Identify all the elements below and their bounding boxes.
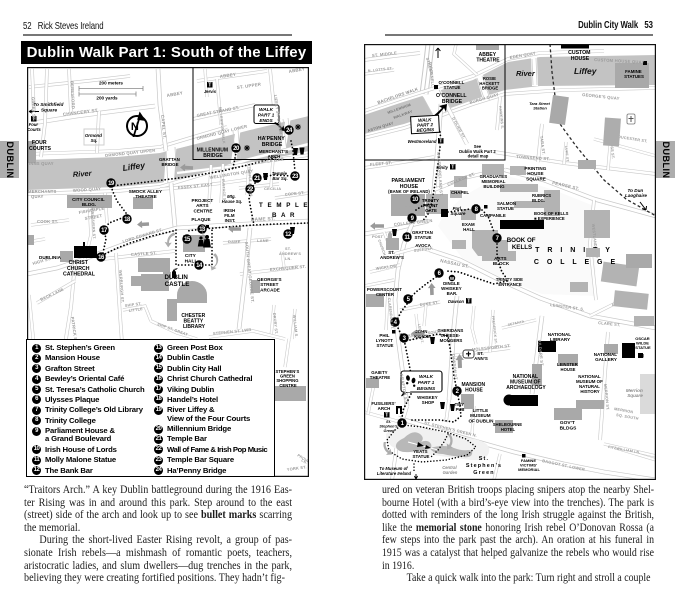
svg-text:CHAPEL: CHAPEL bbox=[451, 190, 469, 195]
svg-text:WALK: WALK bbox=[419, 374, 434, 380]
svg-text:EXAM HALL: EXAM HALL bbox=[462, 222, 476, 232]
svg-text:QUAY: QUAY bbox=[31, 194, 44, 199]
svg-text:LN.: LN. bbox=[285, 257, 292, 261]
svg-text:LANE: LANE bbox=[257, 238, 269, 243]
svg-text:PRINTING HOUSE SQUARE: PRINTING HOUSE SQUARE bbox=[524, 166, 547, 181]
svg-text:ENDS: ENDS bbox=[259, 118, 273, 124]
svg-text:MANSION HOUSE: MANSION HOUSE bbox=[461, 382, 486, 394]
svg-text:CHESTER BEATTY LIBRARY: CHESTER BEATTY LIBRARY bbox=[181, 313, 206, 330]
svg-text:DUBLIN CASTLE: DUBLIN CASTLE bbox=[164, 274, 189, 288]
svg-text:ARTS BLOCK: ARTS BLOCK bbox=[493, 256, 510, 266]
svg-text:FAMINE STATUES: FAMINE STATUES bbox=[624, 69, 644, 79]
svg-text:GAIETY THEATRE: GAIETY THEATRE bbox=[370, 370, 390, 380]
svg-text:WALK: WALK bbox=[259, 107, 274, 113]
svg-text:Green: Green bbox=[473, 470, 495, 476]
svg-text:Liffey: Liffey bbox=[574, 66, 598, 76]
svg-text:Westmoreland: Westmoreland bbox=[408, 139, 437, 144]
svg-text:GOV’T BLDGS: GOV’T BLDGS bbox=[560, 420, 578, 431]
svg-text:BOOK OF KELLS ■ EXPERIENCE: BOOK OF KELLS ■ EXPERIENCE bbox=[534, 211, 570, 221]
svg-text:PART 1: PART 1 bbox=[258, 112, 275, 118]
svg-text:NATIONAL GALLERY: NATIONAL GALLERY bbox=[594, 352, 619, 362]
svg-text:CECILIA: CECILIA bbox=[264, 186, 281, 191]
svg-text:BEGINS: BEGINS bbox=[416, 127, 435, 133]
svg-text:NATIONAL LIBRARY: NATIONAL LIBRARY bbox=[548, 332, 573, 342]
svg-text:TINY PUB: TINY PUB bbox=[455, 402, 466, 412]
svg-text:COOK ST.: COOK ST. bbox=[37, 219, 58, 224]
svg-text:T E M P L E: T E M P L E bbox=[259, 202, 309, 209]
svg-text:ST.: ST. bbox=[285, 247, 291, 251]
svg-text:To Museum of Literature Irelan: To Museum of Literature Ireland bbox=[377, 466, 412, 476]
svg-text:T R I N I T Y: T R I N I T Y bbox=[535, 247, 613, 254]
svg-text:Jervis: Jervis bbox=[204, 89, 217, 94]
svg-text:Temple Bar Sq.: Temple Bar Sq. bbox=[272, 171, 288, 181]
svg-text:GRADUATES MEMORIAL BUILDING: GRADUATES MEMORIAL BUILDING bbox=[480, 174, 509, 189]
svg-text:DAME: DAME bbox=[228, 239, 241, 244]
svg-text:IRISH FILM INST.: IRISH FILM INST. bbox=[224, 208, 237, 223]
svg-text:Stephen’s: Stephen’s bbox=[466, 463, 502, 469]
svg-text:GRATTAN STATUE: GRATTAN STATUE bbox=[412, 230, 434, 240]
svg-text:TRINITY SIDE ENTRANCE: TRINITY SIDE ENTRANCE bbox=[496, 277, 524, 287]
svg-text:POST: POST bbox=[372, 234, 383, 239]
svg-text:CAMPANILE: CAMPANILE bbox=[480, 213, 506, 218]
svg-text:To Dun Laoghaire: To Dun Laoghaire bbox=[625, 188, 647, 198]
svg-text:PART 1: PART 1 bbox=[418, 380, 435, 386]
svg-text:CITY HALL: CITY HALL bbox=[185, 253, 198, 264]
svg-text:BEGINS: BEGINS bbox=[417, 386, 436, 392]
svg-text:200 yards: 200 yards bbox=[96, 96, 118, 101]
svg-text:INNS QUAY: INNS QUAY bbox=[29, 161, 54, 166]
svg-text:River: River bbox=[516, 69, 536, 78]
svg-text:(BANK OF IRELAND): (BANK OF IRELAND) bbox=[388, 189, 430, 194]
svg-text:YEATS STATUE: YEATS STATUE bbox=[413, 449, 430, 459]
svg-text:OSCAR WILDE STATUE: OSCAR WILDE STATUE bbox=[635, 336, 651, 350]
svg-text:River: River bbox=[73, 169, 93, 179]
svg-text:Central Garden: Central Garden bbox=[442, 465, 458, 475]
svg-text:FAMINE VICTIMS’ MEMORIAL: FAMINE VICTIMS’ MEMORIAL bbox=[518, 458, 540, 472]
svg-text:GEORGE’S STREET ARCADE: GEORGE’S STREET ARCADE bbox=[257, 277, 283, 292]
svg-text:Merrion Square: Merrion Square bbox=[626, 388, 644, 398]
svg-text:B A R: B A R bbox=[272, 212, 296, 219]
svg-text:PLAQUE: PLAQUE bbox=[191, 217, 210, 222]
svg-text:DAME ST.: DAME ST. bbox=[251, 216, 275, 223]
svg-text:HA’PENNY BRIDGE: HA’PENNY BRIDGE bbox=[258, 136, 286, 148]
svg-text:ANDREW'S: ANDREW'S bbox=[279, 252, 301, 256]
svg-text:trinity: trinity bbox=[436, 165, 448, 170]
svg-text:GRATTAN BRIDGE: GRATTAN BRIDGE bbox=[159, 157, 181, 167]
svg-text:ABBEY THEATRE: ABBEY THEATRE bbox=[476, 52, 500, 64]
svg-text:C O L L E G E: C O L L E G E bbox=[534, 259, 618, 266]
svg-text:200 meters: 200 meters bbox=[99, 81, 123, 86]
svg-text:CUSTOM HOUSE: CUSTOM HOUSE bbox=[568, 50, 592, 62]
svg-text:Dawson: Dawson bbox=[448, 299, 464, 304]
svg-text:St.: St. bbox=[479, 456, 490, 462]
